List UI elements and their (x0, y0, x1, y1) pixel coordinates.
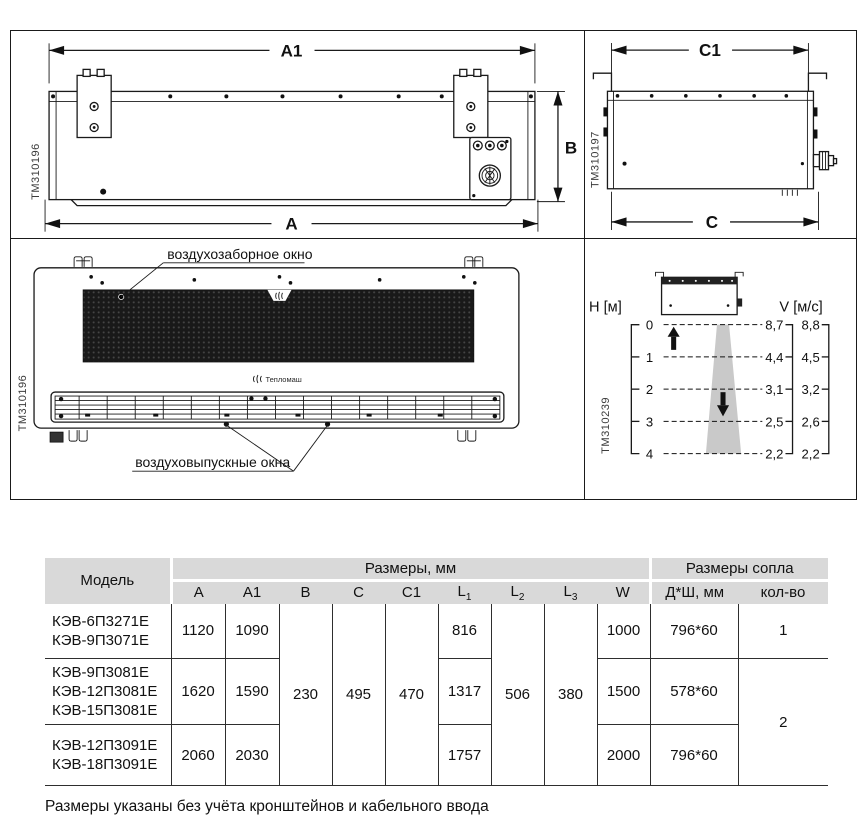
height-2: 2 (646, 382, 653, 397)
col-header-c1: C1 (385, 580, 438, 604)
hanger-hooks (593, 73, 826, 91)
velocity-scale-inner: 8,7 4,4 3,1 2,5 2,2 (765, 318, 792, 462)
v-inner-4: 2,2 (765, 447, 783, 462)
value-nozzle: 796*60 (650, 725, 738, 786)
col-header-a: A (171, 580, 225, 604)
side-body (603, 91, 817, 188)
front-view-drawing: воздухозаборное окно Тепломаш (11, 239, 584, 499)
brand-name: Тепломаш (265, 375, 301, 384)
col-header-l2: L2 (491, 580, 544, 604)
col-group-dimensions: Размеры, мм (171, 558, 650, 580)
height-0: 0 (646, 318, 653, 333)
height-4: 4 (646, 447, 653, 462)
value-l1: 1317 (438, 659, 491, 725)
outlet-label: воздуховыпускные окна (135, 454, 290, 470)
value-l1: 816 (438, 604, 491, 659)
col-header-qty: кол-во (738, 580, 828, 604)
value-w: 1500 (597, 659, 650, 725)
velocity-axis-label: V [м/с] (779, 300, 822, 316)
value-a: 1620 (171, 659, 225, 725)
col-group-nozzle: Размеры сопла (650, 558, 828, 580)
datasheet-page: A1 (0, 0, 865, 840)
value-a1: 2030 (225, 725, 279, 786)
dimension-b: B (537, 91, 577, 201)
height-scale: 0 1 2 3 4 (631, 318, 653, 462)
model-cell: КЭВ-9П3081Е КЭВ-12П3081Е КЭВ-15П3081Е (45, 659, 171, 725)
dimension-c1: C1 (611, 41, 808, 81)
drawing-code: TM310197 (589, 131, 601, 188)
v-outer-2: 3,2 (802, 382, 820, 397)
airflow-quadrant: Н [м] V [м/с] 0 1 (585, 239, 856, 499)
col-header-l3: L3 (544, 580, 597, 604)
col-header-a1: A1 (225, 580, 279, 604)
value-c1: 470 (385, 604, 438, 786)
value-a1: 1590 (225, 659, 279, 725)
height-3: 3 (646, 414, 653, 429)
v-outer-3: 2,6 (802, 414, 820, 429)
value-nozzle: 578*60 (650, 659, 738, 725)
drawing-code: TM310196 (17, 375, 29, 432)
v-outer-1: 4,5 (802, 350, 820, 365)
col-header-c: C (332, 580, 385, 604)
dimension-c: C (611, 192, 818, 232)
bottom-fittings (50, 430, 476, 442)
col-header-w: W (597, 580, 650, 604)
height-axis-label: Н [м] (589, 300, 622, 316)
mini-unit (656, 272, 744, 314)
outlet-annotation: воздуховыпускные окна (132, 421, 330, 471)
top-bracket-left (74, 257, 92, 267)
col-header-nozzle-size: Д*Ш, мм (650, 580, 738, 604)
drawings-panel: A1 (10, 30, 857, 500)
velocity-scale-outer: 8,8 4,5 3,2 2,6 2,2 (802, 318, 829, 462)
dim-b-label: B (565, 139, 577, 158)
v-inner-3: 2,5 (765, 414, 783, 429)
value-a1: 1090 (225, 604, 279, 659)
col-header-b: B (279, 580, 332, 604)
v-outer-0: 8,8 (802, 318, 820, 333)
value-l2: 506 (491, 604, 544, 786)
v-inner-0: 8,7 (765, 318, 783, 333)
dimensions-table: Модель Размеры, мм Размеры сопла A A1 B … (45, 558, 828, 786)
col-header-l1: L1 (438, 580, 491, 604)
cable-gland (813, 152, 836, 170)
airflow-diagram: Н [м] V [м/с] 0 1 (585, 239, 856, 499)
dim-a-label: A (285, 215, 297, 234)
intake-mesh (83, 290, 474, 362)
drawing-code: TM310196 (30, 143, 42, 200)
mounting-bracket-right (454, 69, 488, 137)
drawing-code: TM310239 (600, 397, 612, 454)
intake-label: воздухозаборное окно (167, 246, 312, 262)
front-view-quadrant: воздухозаборное окно Тепломаш (11, 239, 585, 499)
value-l1: 1757 (438, 725, 491, 786)
table-footnote: Размеры указаны без учёта кронштейнов и … (45, 798, 489, 816)
top-bracket-right (465, 257, 483, 267)
value-b: 230 (279, 604, 332, 786)
col-header-model: Модель (45, 558, 171, 604)
value-a: 1120 (171, 604, 225, 659)
side-view-drawing: C1 (585, 31, 856, 238)
value-w: 1000 (597, 604, 650, 659)
dim-c1-label: C1 (699, 41, 721, 60)
value-l3: 380 (544, 604, 597, 786)
value-qty: 2 (738, 659, 828, 786)
mounting-bracket-left (77, 69, 111, 137)
rear-view-drawing: A1 (11, 31, 584, 238)
bottom-ticks (782, 190, 797, 196)
v-outer-4: 2,2 (802, 447, 820, 462)
electrical-box (470, 138, 511, 200)
value-a: 2060 (171, 725, 225, 786)
value-nozzle: 796*60 (650, 604, 738, 659)
value-c: 495 (332, 604, 385, 786)
value-w: 2000 (597, 725, 650, 786)
v-inner-2: 3,1 (765, 382, 783, 397)
table-row: КЭВ-6П3271Е КЭВ-9П3071Е 1120 1090 230 49… (45, 604, 828, 659)
model-cell: КЭВ-6П3271Е КЭВ-9П3071Е (45, 604, 171, 659)
model-cell: КЭВ-12П3091Е КЭВ-18П3091Е (45, 725, 171, 786)
v-inner-1: 4,4 (765, 350, 783, 365)
dim-a1-label: A1 (281, 41, 303, 60)
outlet-grille (51, 392, 504, 422)
height-1: 1 (646, 350, 653, 365)
rear-view-quadrant: A1 (11, 31, 585, 239)
side-view-quadrant: C1 (585, 31, 856, 239)
value-qty: 1 (738, 604, 828, 659)
dim-c-label: C (706, 213, 718, 232)
